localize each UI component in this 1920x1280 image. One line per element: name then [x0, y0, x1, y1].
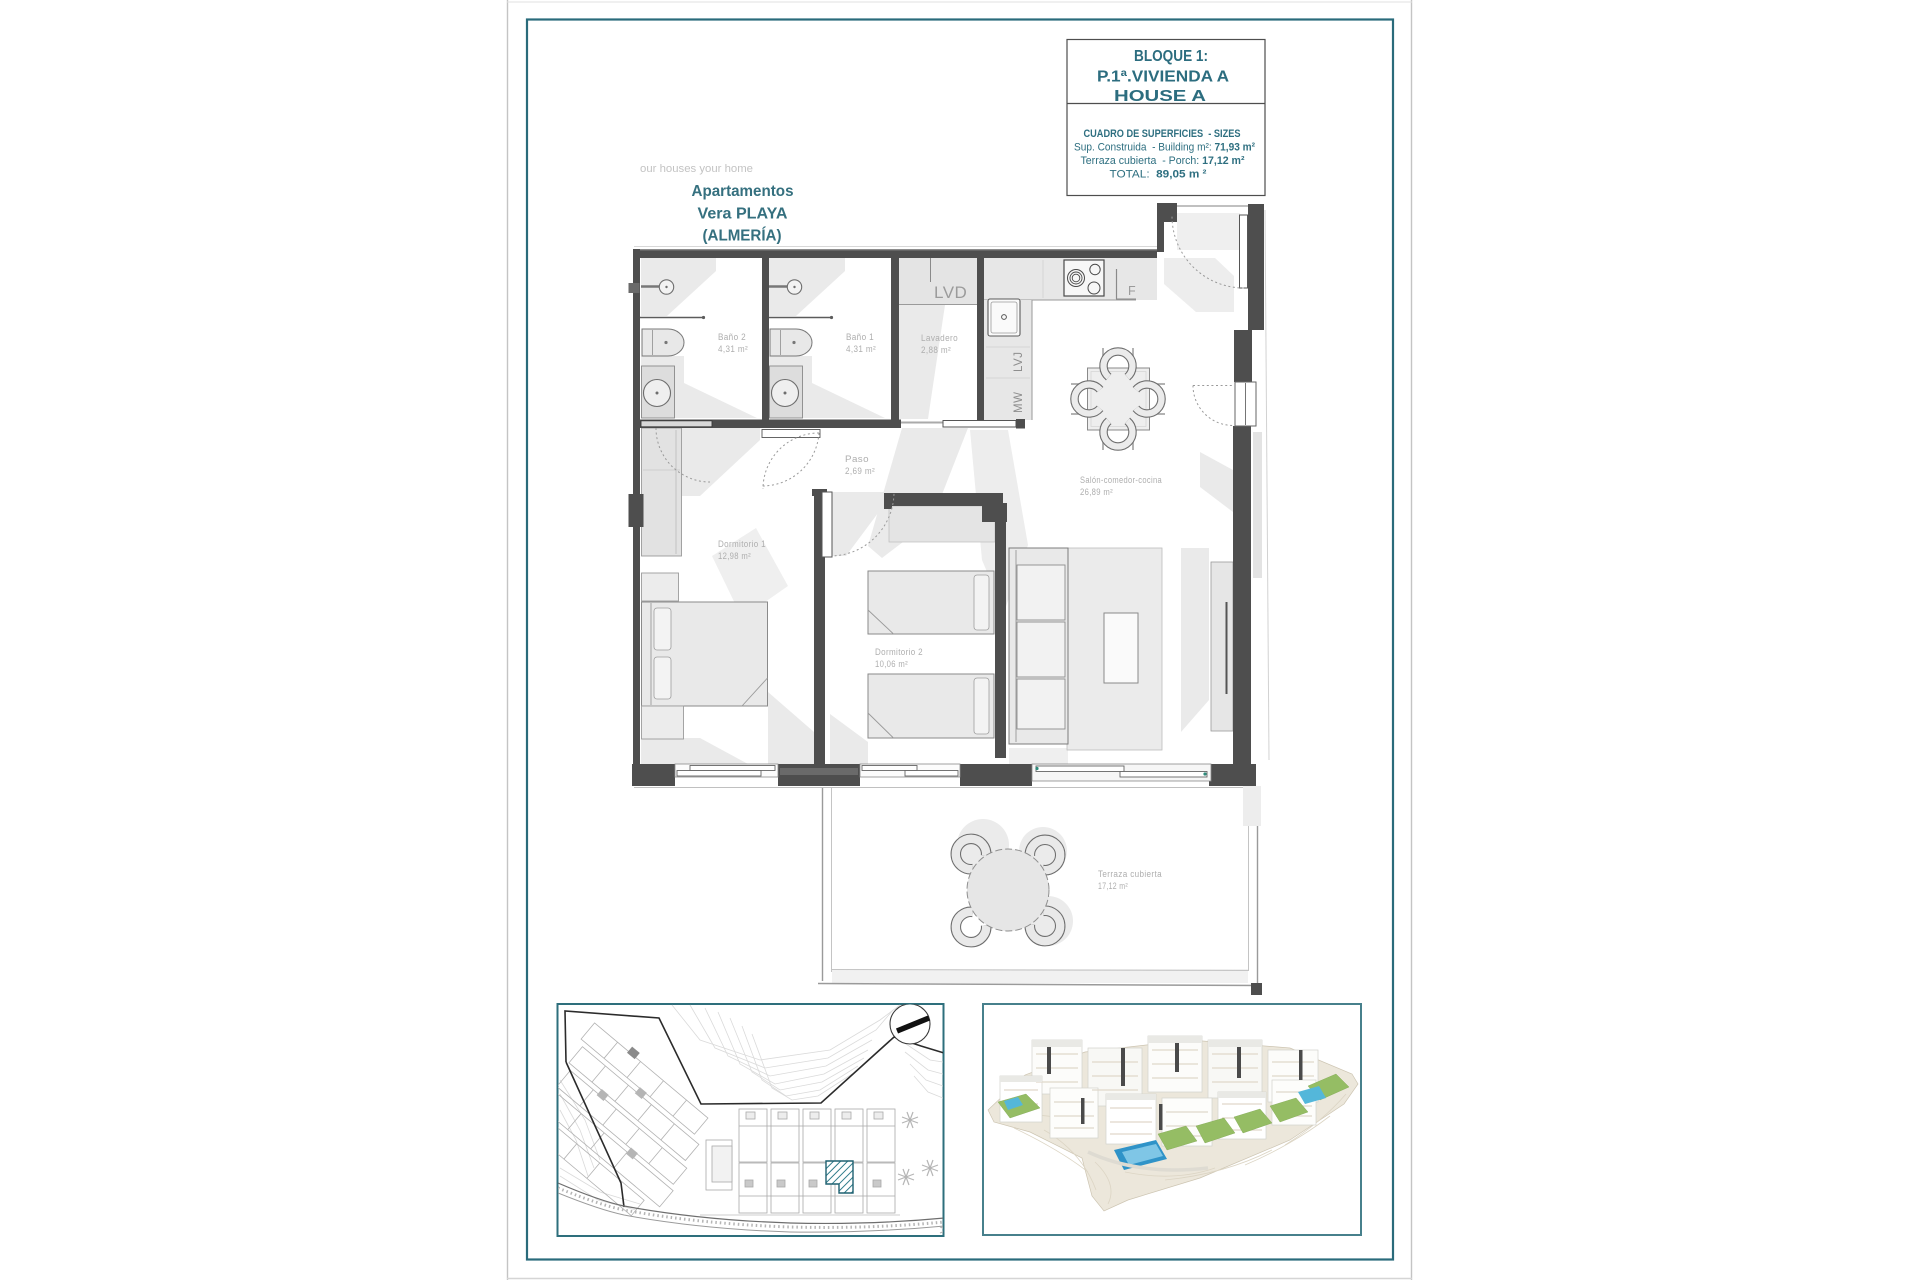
svg-text:Salón-comedor-cocina: Salón-comedor-cocina — [1080, 475, 1162, 485]
svg-text:BLOQUE 1:: BLOQUE 1: — [1134, 48, 1208, 65]
svg-text:12,98 m²: 12,98 m² — [718, 551, 751, 561]
svg-text:Baño 1: Baño 1 — [846, 332, 874, 342]
svg-text:4,31 m²: 4,31 m² — [718, 344, 748, 354]
svg-text:Lavadero: Lavadero — [921, 333, 958, 343]
svg-text:Vera PLAYA: Vera PLAYA — [698, 206, 788, 223]
svg-text:CUADRO DE SUPERFICIES - SIZES: CUADRO DE SUPERFICIES - SIZES — [1084, 128, 1241, 140]
svg-text:Apartamentos: Apartamentos — [692, 183, 794, 200]
svg-text:17,12 m²: 17,12 m² — [1098, 881, 1128, 891]
svg-text:Paso: Paso — [845, 454, 869, 464]
svg-text:4,31 m²: 4,31 m² — [846, 344, 876, 354]
svg-text:our houses your home: our houses your home — [640, 163, 753, 175]
svg-text:26,89 m²: 26,89 m² — [1080, 487, 1113, 497]
svg-text:(ALMERÍA): (ALMERÍA) — [703, 226, 782, 245]
svg-text:2,88 m²: 2,88 m² — [921, 345, 951, 355]
svg-text:Baño 2: Baño 2 — [718, 332, 746, 342]
svg-text:F: F — [1128, 284, 1136, 298]
svg-text:TOTAL: 89,05 m ²: TOTAL: 89,05 m ² — [1110, 169, 1207, 181]
svg-text:LVD: LVD — [934, 283, 967, 302]
svg-text:Dormitorio 1: Dormitorio 1 — [718, 539, 766, 549]
svg-text:P.1ª.VIVIENDA A: P.1ª.VIVIENDA A — [1097, 69, 1229, 86]
svg-text:Sup. Construida - Building m²: Sup. Construida - Building m²: 71,93 m² — [1074, 142, 1255, 154]
svg-text:HOUSE A: HOUSE A — [1114, 88, 1207, 105]
svg-text:LVJ: LVJ — [1013, 352, 1025, 372]
svg-text:Terraza cubierta - Porch: 17,: Terraza cubierta - Porch: 17,12 m² — [1081, 155, 1245, 167]
svg-text:Dormitorio 2: Dormitorio 2 — [875, 647, 923, 657]
svg-text:MW: MW — [1013, 392, 1025, 413]
svg-text:2,69 m²: 2,69 m² — [845, 466, 875, 476]
svg-text:10,06 m²: 10,06 m² — [875, 659, 908, 669]
svg-text:Terraza cubierta: Terraza cubierta — [1098, 869, 1162, 879]
